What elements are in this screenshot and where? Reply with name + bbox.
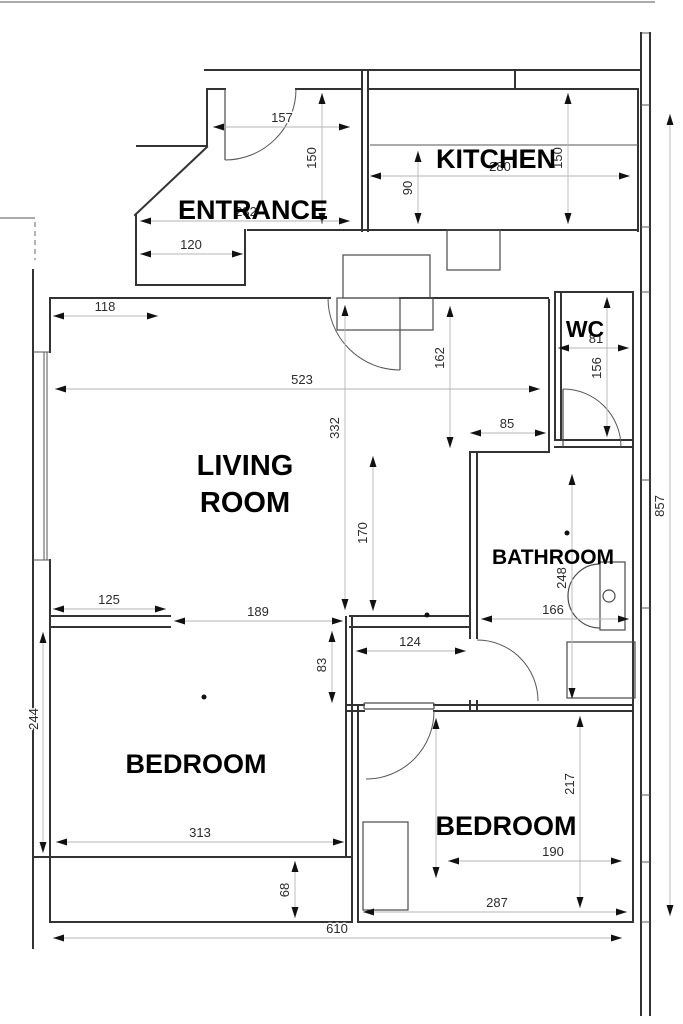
bathroom-sink-bowl: [568, 564, 600, 628]
dimension-label: 124: [399, 634, 421, 649]
living-room-door-arc: [328, 298, 400, 370]
dimension-label: 190: [542, 844, 564, 859]
reference-dot: [202, 695, 207, 700]
walls: [33, 33, 650, 1015]
dimension-label: 523: [291, 372, 313, 387]
dimension-label: 313: [189, 825, 211, 840]
floor-plan: 157 150 280 150 90 232 120 118 81 156 52…: [0, 0, 683, 1024]
dimension-label: 156: [589, 357, 604, 379]
room-label-entrance: ENTRANCE: [178, 195, 328, 225]
dimension-label: 610: [326, 921, 348, 936]
dimension-label: 120: [180, 237, 202, 252]
dimension-label: 244: [26, 708, 41, 730]
floor-plan-page: 157 150 280 150 90 232 120 118 81 156 52…: [0, 0, 683, 1024]
bedroom-wardrobe: [363, 822, 408, 910]
reference-dot: [425, 613, 430, 618]
reference-dot: [565, 531, 570, 536]
kitchen-cabinet: [447, 230, 500, 270]
dimension-label: 68: [277, 883, 292, 897]
dimension-label: 248: [554, 567, 569, 589]
room-label-bedroom-right: BEDROOM: [436, 811, 577, 841]
bathroom-sink-drain: [603, 590, 615, 602]
room-label-kitchen: KITCHEN: [436, 144, 556, 174]
dimension-label: 857: [652, 495, 667, 517]
dimension-label: 118: [95, 299, 116, 314]
dimension-label: 170: [355, 522, 370, 544]
room-label-living-line2: ROOM: [200, 487, 290, 519]
bathroom-sink-counter: [600, 562, 625, 630]
dimension-label: 85: [500, 416, 514, 431]
room-label-living-line1: LIVING: [197, 450, 294, 482]
corridor-cabinet-lower: [337, 298, 433, 330]
corridor-cabinet-upper: [343, 255, 430, 298]
dimension-label: 90: [400, 181, 415, 195]
dimension-label: 217: [562, 773, 577, 795]
bathroom-door-arc: [477, 640, 538, 701]
dimension-label: 332: [327, 417, 342, 439]
dimension-label: 287: [486, 895, 508, 910]
room-label-bedroom-left: BEDROOM: [126, 749, 267, 779]
dimension-label: 150: [304, 147, 319, 169]
dimension-label: 157: [271, 110, 293, 125]
bedroom-door-arc: [366, 711, 434, 779]
dimension-label: 166: [542, 602, 564, 617]
dimension-label: 83: [314, 658, 329, 672]
dimension-label: 162: [432, 347, 447, 369]
windows: [33, 105, 650, 922]
fixtures: [337, 145, 638, 910]
dimension-label: 189: [247, 604, 269, 619]
room-label-bathroom: BATHROOM: [492, 546, 614, 569]
bathroom-shower: [567, 642, 635, 698]
dimension-label: 125: [98, 592, 120, 607]
wc-door-arc: [563, 389, 621, 447]
room-label-wc: WC: [566, 316, 604, 342]
